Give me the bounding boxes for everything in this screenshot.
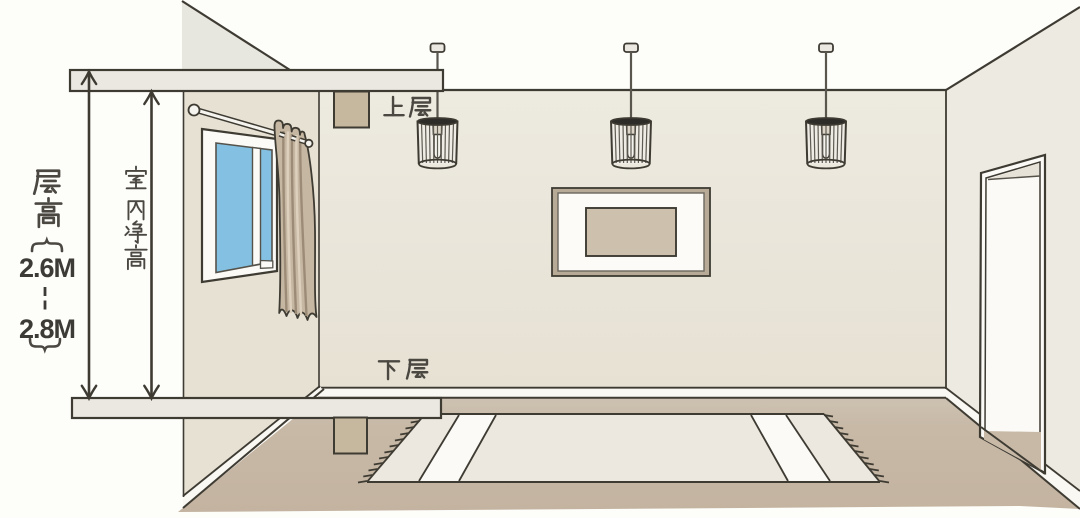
svg-text:2.6M: 2.6M	[19, 253, 75, 283]
svg-text:2.8M: 2.8M	[19, 314, 75, 344]
